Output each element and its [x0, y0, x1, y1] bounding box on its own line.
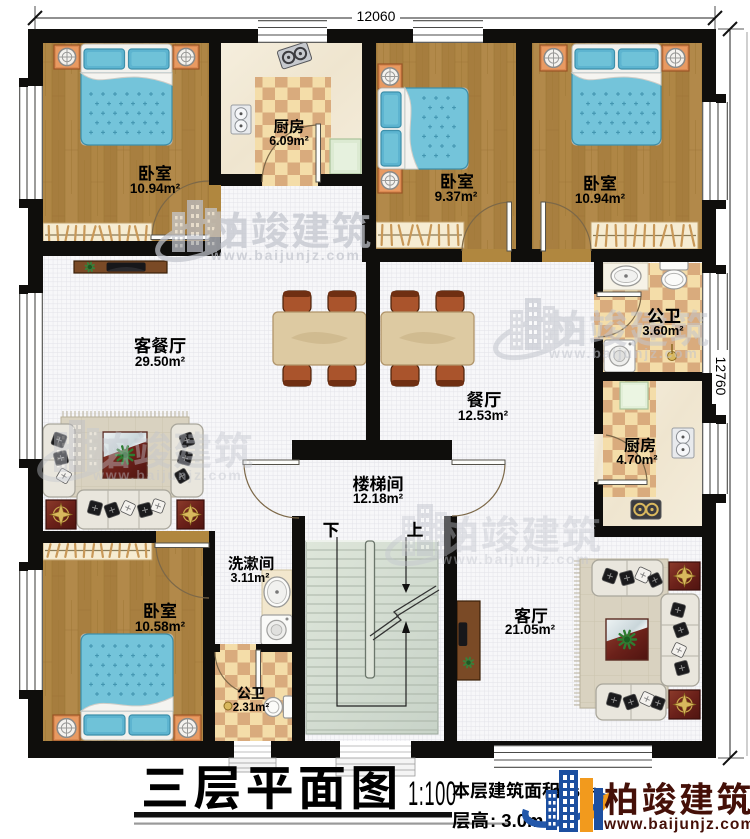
svg-text:www.baijunjz.com: www.baijunjz.com [210, 247, 361, 263]
svg-text:www.baijunjz.com: www.baijunjz.com [92, 467, 243, 483]
svg-text:2.31m²: 2.31m² [233, 702, 270, 714]
svg-text:10.94m²: 10.94m² [130, 181, 181, 196]
svg-text:6.09m²: 6.09m² [269, 134, 309, 148]
svg-text:www.baijunjz.com: www.baijunjz.com [440, 551, 591, 567]
svg-text:3.11m²: 3.11m² [231, 571, 270, 585]
svg-text:21.05m²: 21.05m² [505, 622, 556, 637]
svg-text:10.58m²: 10.58m² [135, 619, 186, 634]
svg-text:12760: 12760 [713, 357, 729, 396]
svg-text:1:100: 1:100 [408, 774, 457, 813]
svg-text:12.53m²: 12.53m² [458, 408, 509, 423]
svg-text:12.18m²: 12.18m² [353, 491, 404, 506]
svg-text:12060: 12060 [357, 8, 396, 24]
svg-text:4.70m²: 4.70m² [616, 452, 658, 467]
svg-text:10.94m²: 10.94m² [575, 191, 626, 206]
svg-text:3.60m²: 3.60m² [642, 323, 684, 338]
svg-text:9.37m²: 9.37m² [435, 189, 478, 204]
svg-text:www.baijunjz.com: www.baijunjz.com [548, 345, 699, 361]
svg-text:29.50m²: 29.50m² [135, 354, 186, 369]
svg-text:www.baijunjz.com: www.baijunjz.com [603, 816, 750, 833]
